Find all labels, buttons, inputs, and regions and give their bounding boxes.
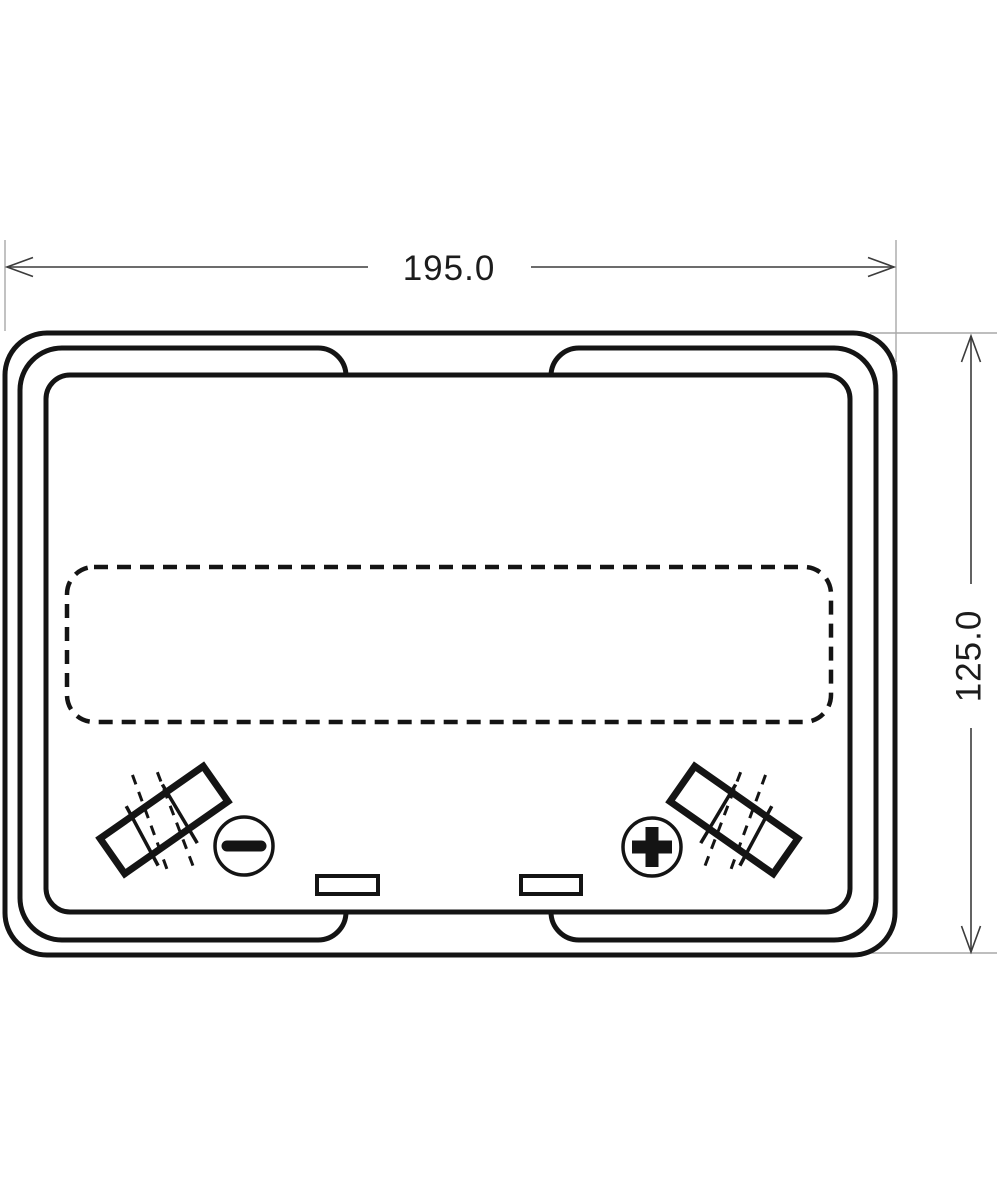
battery-lid-left-contour bbox=[20, 348, 346, 940]
positive-terminal bbox=[623, 818, 681, 876]
battery-drawing-canvas: 195.0 125.0 bbox=[0, 0, 1000, 1200]
label-area-dashed-outline bbox=[67, 567, 831, 722]
negative-terminal bbox=[215, 817, 273, 875]
ledge-block-right bbox=[670, 766, 798, 873]
height-dimension-label: 125.0 bbox=[950, 610, 989, 703]
hold-down-ledge-right bbox=[648, 739, 817, 905]
ledge-block-left bbox=[100, 766, 228, 873]
vent-slot-left bbox=[317, 876, 378, 894]
plus-icon bbox=[632, 827, 672, 867]
drawing-sheet: 195.0 125.0 bbox=[0, 0, 1000, 1200]
battery-lid-right-contour bbox=[551, 348, 876, 940]
hold-down-ledge-left bbox=[81, 739, 250, 905]
width-dimension-label: 195.0 bbox=[403, 249, 496, 288]
battery-inner-rim bbox=[46, 375, 850, 912]
vent-slot-right bbox=[521, 876, 581, 894]
